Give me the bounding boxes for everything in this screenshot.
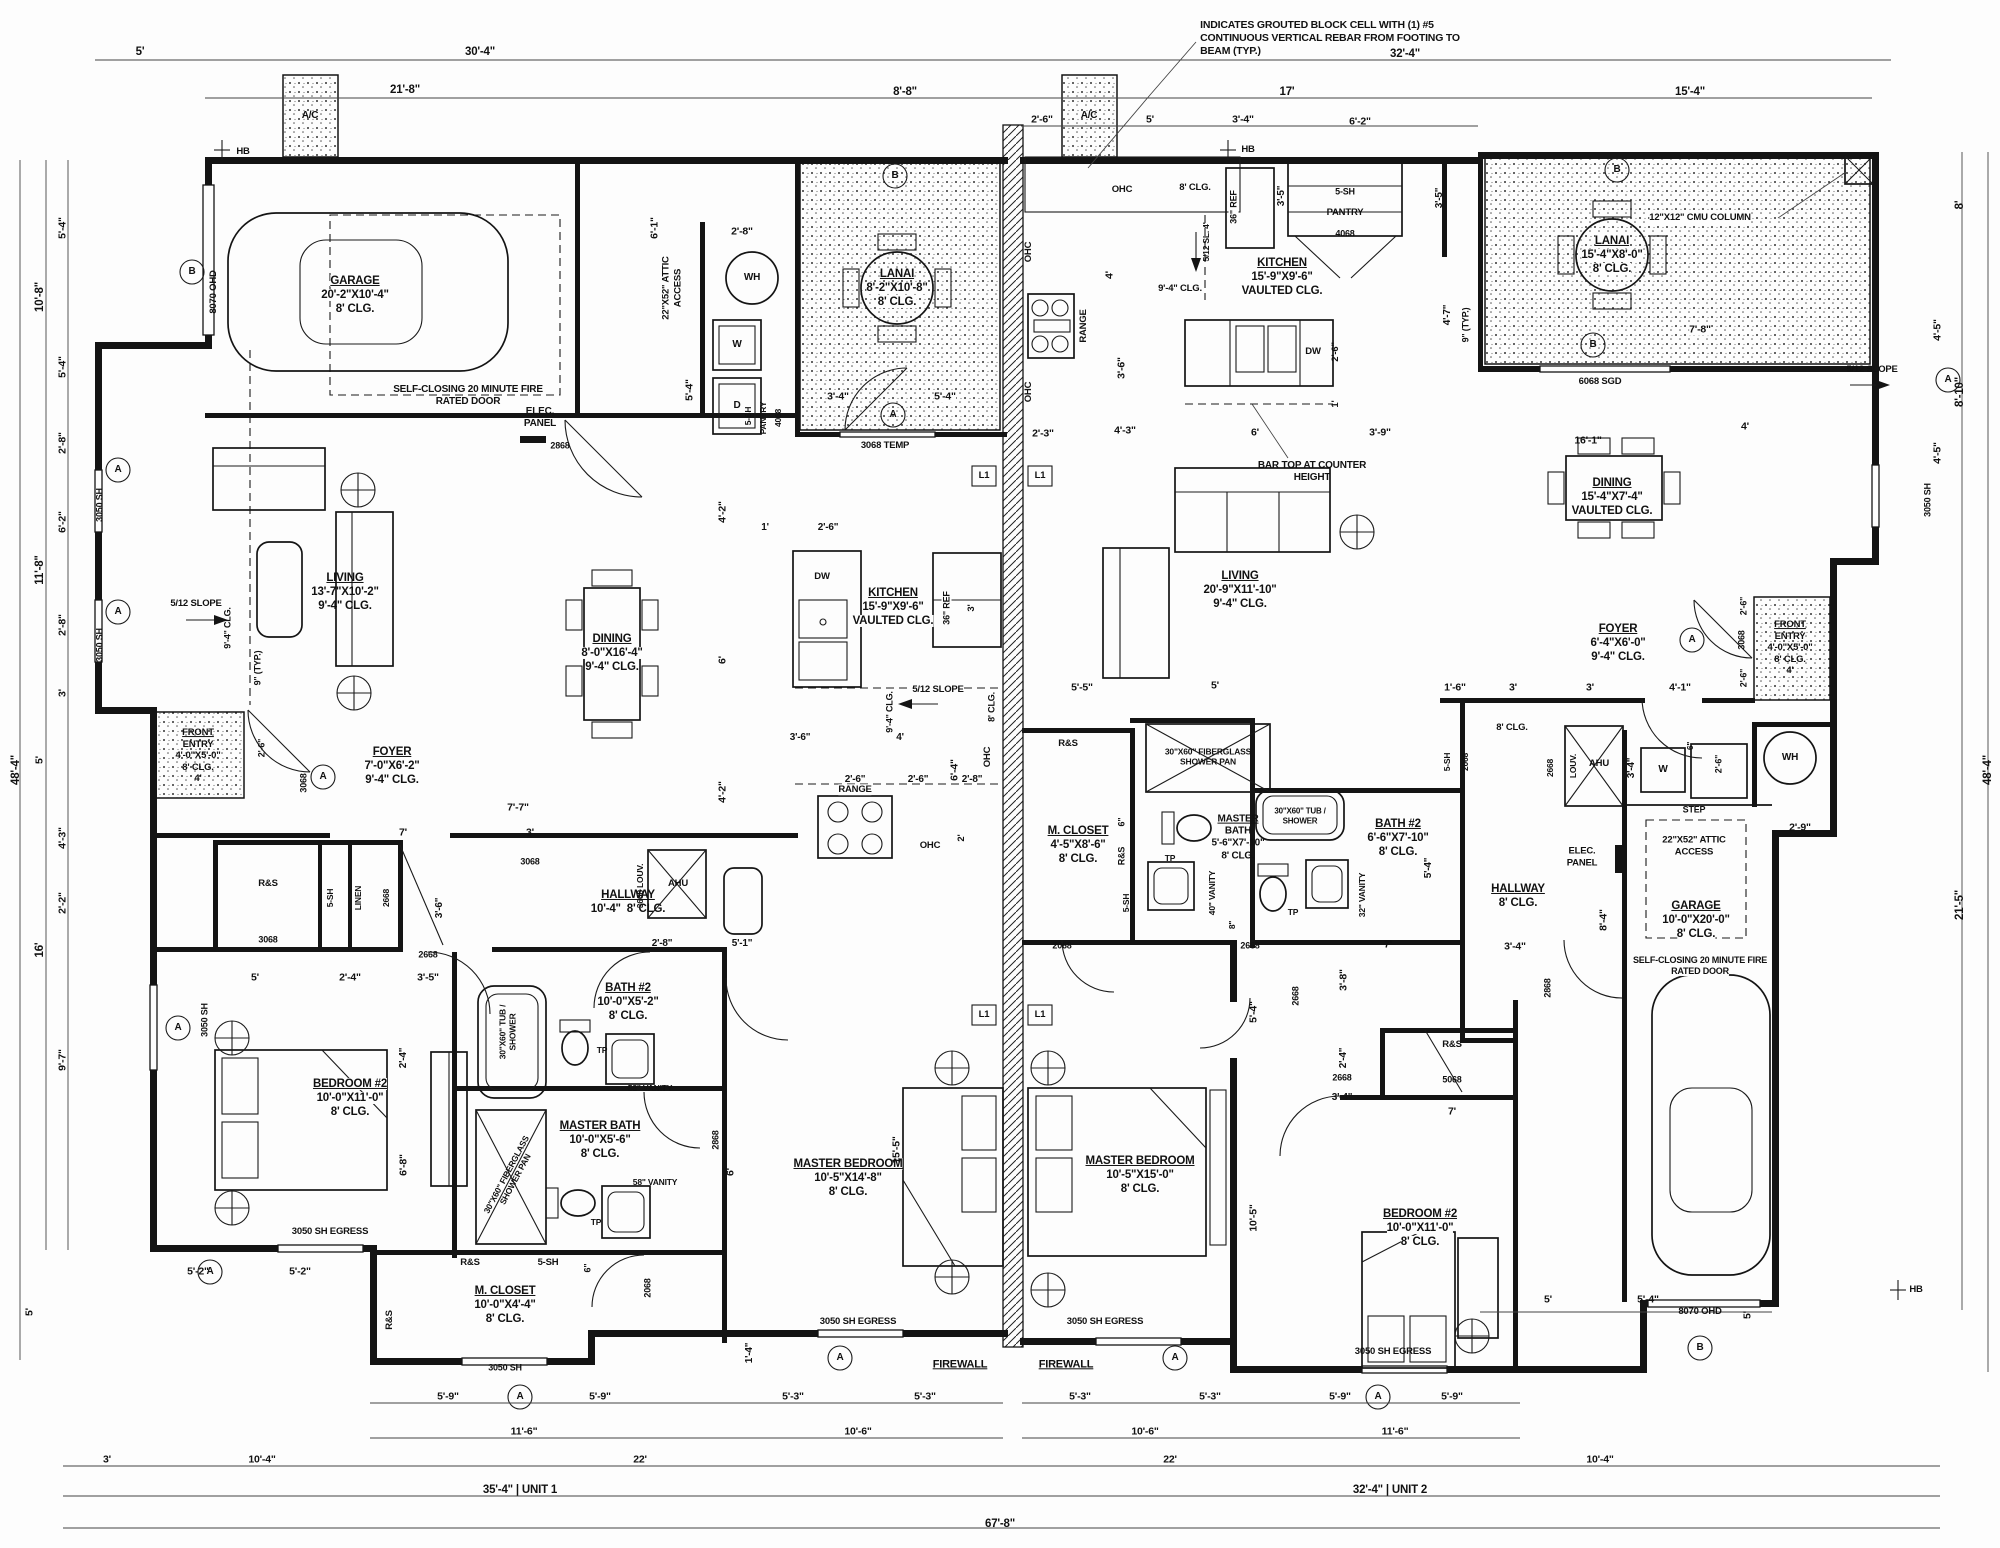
- label-252: 5'-4": [1423, 858, 1435, 879]
- label-138: 5'-2": [289, 1266, 311, 1279]
- label-142: 1'-4": [744, 1343, 756, 1364]
- label-189: 3'-9": [1369, 427, 1391, 440]
- label-268: A: [114, 606, 121, 618]
- label-274: A: [836, 1352, 843, 1364]
- label-103: 2668: [418, 950, 437, 961]
- label-159: 5'-9": [1441, 1391, 1463, 1404]
- label-250: 32" VANITY: [1357, 873, 1367, 917]
- room-kitchen-u1: KITCHEN 15'-9"X9'-6" VAULTED CLG.: [853, 586, 934, 628]
- label-116: 3050 SH: [200, 1003, 211, 1037]
- label-196: 9" (TYP.): [1461, 308, 1472, 343]
- label-88: 2'-8": [962, 774, 983, 786]
- label-165: 5': [1544, 1294, 1552, 1307]
- room-masterbedroom-u2: MASTER BEDROOM 10'-5"X15'-0" 8' CLG.: [1085, 1154, 1194, 1196]
- label-92: L1: [979, 470, 990, 482]
- label-118: 6'-8": [398, 1154, 411, 1176]
- label-106: 7'-7": [507, 802, 529, 815]
- label-266: 3050 SH EGRESS: [1355, 1346, 1431, 1358]
- room-bath2-u2: BATH #2 6'-6"X7'-10" 8' CLG.: [1367, 817, 1428, 859]
- label-186: 2'-6": [1330, 342, 1342, 362]
- label-147: 5'-3": [782, 1391, 804, 1404]
- room-dining-u1: DINING 8'-0"X16'-4" 9'-4" CLG.: [581, 632, 642, 674]
- label-221: 2'-9": [1789, 822, 1811, 835]
- label-20: 2'-8": [57, 432, 70, 454]
- room-bedroom2-u2: BEDROOM #2 10'-0"X11'-0" 8' CLG.: [1383, 1207, 1457, 1249]
- label-161: 11'-6": [1382, 1426, 1409, 1439]
- unit1-dim: 35'-4" | UNIT 1: [483, 1483, 557, 1497]
- label-109: 5'-1": [732, 938, 753, 950]
- label-217: 6": [1685, 742, 1695, 750]
- label-239: 40" VANITY: [1207, 871, 1217, 915]
- label-180: 3'-6": [1116, 357, 1129, 379]
- label-10: HB: [236, 146, 249, 158]
- label-38: 3050 SH: [1923, 483, 1934, 517]
- label-231: HB: [1909, 1284, 1922, 1296]
- label-63: 3050 SH: [95, 488, 106, 522]
- plan-labels: INDICATES GROUTED BLOCK CELL WITH (1) #5…: [0, 0, 2000, 1548]
- label-117: 2'-4": [398, 1048, 410, 1069]
- label-269: A: [319, 771, 326, 783]
- label-77: 36" REF: [942, 591, 953, 624]
- label-43: ELEC, PANEL: [524, 406, 556, 430]
- label-177: 5/12 SL. 4': [1201, 222, 1211, 261]
- label-33: 4'-5": [1932, 319, 1945, 341]
- label-282: B: [1613, 164, 1620, 176]
- label-21: 11'-8": [33, 555, 47, 584]
- label-167: OHC: [1023, 242, 1035, 263]
- label-11: HB: [1241, 144, 1254, 156]
- label-233: R&S: [1058, 738, 1077, 750]
- label-56: 3'-4": [827, 391, 849, 404]
- label-5: 8'-8": [893, 85, 917, 99]
- label-105: 3': [526, 827, 534, 840]
- label-104: 7': [399, 827, 407, 840]
- label-246: 3'-8": [1338, 969, 1351, 991]
- room-mcloset-u2: M. CLOSET 4'-5"X8'-6" 8' CLG.: [1048, 824, 1109, 866]
- label-51: 5'-4": [684, 379, 697, 401]
- label-267: A: [114, 464, 121, 476]
- label-133: R&S: [384, 1310, 396, 1329]
- label-72: 4'-2": [717, 781, 730, 803]
- label-283: B: [1696, 1342, 1703, 1354]
- label-122: TP: [597, 1045, 607, 1055]
- label-229: 2868: [1543, 978, 1554, 997]
- label-73: 1': [761, 522, 769, 534]
- label-262: R&S: [1442, 1039, 1461, 1051]
- label-70: 4'-2": [717, 501, 730, 523]
- label-178: 9'-4" CLG.: [1158, 283, 1202, 295]
- label-207: 3': [1586, 682, 1594, 695]
- label-199: 4': [1741, 421, 1749, 434]
- label-78: 3': [966, 604, 978, 611]
- label-19: 5'-4": [57, 356, 70, 378]
- room-dining-u2: DINING 15'-4"X7'-4" VAULTED CLG.: [1572, 476, 1653, 518]
- label-28: 16': [33, 943, 47, 958]
- label-251: TP: [1288, 907, 1298, 917]
- label-235: R&S: [1117, 847, 1128, 865]
- label-84: OHC: [982, 747, 994, 768]
- label-247: 7': [1384, 939, 1392, 952]
- label-219: WH: [1782, 752, 1798, 764]
- label-185: DW: [1305, 346, 1320, 358]
- label-114: 3'-5": [417, 972, 439, 985]
- label-172: 36" REF: [1229, 190, 1240, 223]
- label-22: 6'-2": [57, 511, 70, 533]
- label-261: 3'-4": [1332, 1092, 1353, 1104]
- label-136: 3050 SH: [488, 1363, 522, 1374]
- label-134: 6": [583, 1264, 594, 1273]
- room-masterbath-u1: MASTER BATH 10'-0"X5'-6" 8' CLG.: [560, 1119, 641, 1161]
- label-80: 9'-4" CLG.: [885, 691, 896, 732]
- firewall-label-1: FIREWALL: [933, 1358, 988, 1371]
- label-140: 15'-5": [891, 1136, 904, 1163]
- label-279: B: [188, 266, 195, 278]
- label-110: 3668 LOUV.: [635, 864, 645, 908]
- label-175: 4068: [1335, 229, 1354, 240]
- label-23: 2'-8": [57, 614, 70, 636]
- label-135: 2068: [643, 1278, 654, 1297]
- label-71: 6': [717, 656, 730, 664]
- label-280: B: [891, 170, 898, 182]
- label-206: 3': [1509, 682, 1517, 695]
- label-111: AHU: [668, 878, 688, 890]
- label-99: 5-SH: [325, 889, 335, 908]
- label-275: A: [1171, 1352, 1178, 1364]
- label-85: 3'-6": [790, 732, 811, 744]
- label-241: 2068: [1052, 941, 1071, 952]
- label-166: 5'-4": [1637, 1294, 1659, 1307]
- slope-u1-kitchen: 5/12 SLOPE: [912, 684, 963, 696]
- room-garage-u2: GARAGE 10'-0"X20'-0" 8' CLG.: [1662, 899, 1729, 941]
- room-foyer-u2: FOYER 6'-4"X6'-0" 9'-4" CLG.: [1590, 622, 1645, 664]
- label-2: 30'-4": [465, 45, 495, 59]
- label-158: 5'-9": [1329, 1391, 1351, 1404]
- note-bar-top: BAR TOP AT COUNTER HEIGHT: [1258, 460, 1366, 484]
- label-270: A: [889, 409, 896, 421]
- label-222: 22"X52" ATTIC ACCESS: [1662, 834, 1725, 857]
- label-68: 2'-6": [257, 739, 268, 757]
- label-148: 5'-3": [914, 1391, 936, 1404]
- label-53: PANTRY: [758, 402, 768, 435]
- label-243: 2668: [1240, 941, 1259, 952]
- label-276: A: [1374, 1391, 1381, 1403]
- label-193: 7'-8": [1689, 324, 1711, 337]
- ac-pad-2: A/C: [1081, 110, 1098, 122]
- label-205: 1'-6": [1444, 682, 1466, 695]
- label-128: 2868: [711, 1130, 722, 1149]
- label-90: OHC: [920, 840, 941, 852]
- label-272: A: [206, 1266, 213, 1278]
- label-277: A: [1688, 634, 1695, 646]
- label-238: TP: [1165, 853, 1175, 863]
- label-271: A: [174, 1022, 181, 1034]
- room-living-u1: LIVING 13'-7"X10'-2" 9'-4" CLG.: [311, 571, 378, 613]
- label-35: 4'-5": [1932, 442, 1945, 464]
- label-263: 5068: [1442, 1075, 1461, 1086]
- label-194: 6068 SGD: [1579, 376, 1622, 388]
- label-101: 2668: [381, 889, 391, 907]
- label-169: RANGE: [1078, 309, 1090, 342]
- label-26: 4'-3": [57, 827, 70, 849]
- label-245: 2668: [1291, 986, 1302, 1005]
- ac-pad-1: A/C: [302, 110, 319, 122]
- label-81: 4': [896, 732, 904, 744]
- label-119: 3050 SH EGRESS: [292, 1226, 368, 1238]
- label-181: 2'-3": [1032, 428, 1054, 441]
- label-76: DW: [814, 571, 829, 583]
- label-157: 5'-3": [1199, 1391, 1221, 1404]
- label-168: OHC: [1023, 382, 1035, 403]
- label-127: TP: [591, 1217, 601, 1227]
- label-27: 2'-2": [57, 892, 70, 914]
- label-174: PANTRY: [1327, 207, 1364, 219]
- label-91: 2': [956, 834, 968, 841]
- room-mcloset-u1: M. CLOSET 10'-0"X4'-4" 8' CLG.: [474, 1284, 535, 1326]
- label-132: 5-SH: [538, 1257, 559, 1269]
- label-215: 3'-4": [1626, 758, 1638, 779]
- label-47: 2'-8": [731, 226, 753, 239]
- label-204: 2'-6": [1739, 669, 1750, 687]
- label-212: 2668: [1545, 759, 1555, 777]
- label-7: 15'-4": [1675, 85, 1705, 99]
- label-126: 58" VANITY: [633, 1177, 677, 1187]
- label-45: 22"X52" ATTIC ACCESS: [660, 256, 683, 319]
- label-188: 6': [1251, 427, 1259, 440]
- note-fire-door-u2: SELF-CLOSING 20 MINUTE FIRE RATED DOOR: [1633, 955, 1767, 977]
- label-216: W: [1658, 764, 1667, 776]
- label-112: 5': [251, 972, 259, 985]
- label-151: 3': [103, 1454, 111, 1467]
- label-44: 2868: [550, 441, 569, 452]
- room-living-u2: LIVING 20'-9"X11'-10" 9'-4" CLG.: [1203, 569, 1276, 611]
- label-37: 5': [1742, 1311, 1755, 1319]
- label-32: 8': [1953, 201, 1967, 210]
- room-hallway-u1: HALLWAY 10'-4" 8' CLG.: [591, 888, 665, 916]
- label-13: 5': [1146, 114, 1154, 127]
- label-237: 30"X60" FIBERGLASS SHOWER PAN: [1165, 747, 1251, 768]
- slope-u2-dining: 5/12 SLOPE: [1846, 364, 1897, 376]
- label-100: LINEN: [353, 886, 363, 911]
- slope-u1-living: 5/12 SLOPE: [170, 598, 221, 610]
- label-179: 4': [1104, 271, 1117, 279]
- label-102: 3'-6": [434, 898, 446, 919]
- room-masterbath-u2: MASTER BATH 5'-6"X7'-10" 8' CLG.: [1212, 814, 1265, 863]
- label-107: 3068: [520, 857, 539, 868]
- label-83: 8' CLG.: [987, 692, 998, 722]
- label-163: 10'-4": [1586, 1454, 1613, 1467]
- label-82: 6'-4": [949, 759, 962, 781]
- label-214: AHU: [1589, 758, 1609, 770]
- label-258: 3050 SH EGRESS: [1067, 1316, 1143, 1328]
- label-50: D: [733, 400, 740, 412]
- label-184: 3'-5": [1434, 188, 1446, 209]
- label-3: 32'-4": [1390, 47, 1420, 61]
- label-182: 4'-3": [1114, 425, 1136, 438]
- label-254: 5'-5": [1071, 682, 1093, 695]
- label-58: 3068 TEMP: [861, 440, 909, 452]
- label-225: 8'-4": [1598, 909, 1611, 931]
- room-hallway-u2: HALLWAY 8' CLG.: [1491, 882, 1545, 910]
- label-209: 8' CLG.: [1496, 722, 1527, 734]
- label-52: 5-SH: [743, 407, 753, 426]
- label-152: 10'-4": [248, 1454, 275, 1467]
- label-89: RANGE: [838, 784, 871, 796]
- label-173: 5-SH: [1335, 187, 1355, 198]
- label-223: ELEC. PANEL: [1567, 845, 1598, 868]
- floorplan-sheet: INDICATES GROUTED BLOCK CELL WITH (1) #5…: [0, 0, 2000, 1548]
- room-kitchen-u2: KITCHEN 15'-9"X9'-6" VAULTED CLG.: [1242, 256, 1323, 298]
- label-260: 2668: [1332, 1073, 1351, 1084]
- label-48: WH: [744, 272, 760, 284]
- label-46: 6'-1": [649, 217, 662, 239]
- label-281: B: [1589, 339, 1596, 351]
- label-146: 5'-9": [589, 1391, 611, 1404]
- label-123: 58" VANITY: [628, 1083, 672, 1093]
- label-187: 1': [1330, 400, 1342, 407]
- room-lanai-u1: LANAI 8'-2"X10'-8" 8' CLG.: [866, 267, 927, 309]
- label-16: 48'-4": [9, 755, 23, 785]
- label-228: 3'-4": [1504, 941, 1526, 954]
- label-125: 30"X60" FIBERGLASS SHOWER PAN: [482, 1134, 541, 1220]
- label-244: 5'-4": [1248, 1001, 1261, 1023]
- label-36: 21'-5": [1953, 890, 1967, 920]
- label-57: 5'-4": [934, 391, 956, 404]
- label-34: 8'-10": [1953, 377, 1967, 407]
- label-94: L1: [979, 1009, 990, 1021]
- label-18: 5'-4": [57, 217, 70, 239]
- label-121: 30"X60" TUB / SHOWER: [498, 1005, 519, 1060]
- label-74: 2'-6": [818, 522, 839, 534]
- note-fire-door-u1: SELF-CLOSING 20 MINUTE FIRE RATED DOOR: [393, 384, 543, 408]
- label-257: 10'-5": [1248, 1204, 1261, 1231]
- label-234: 6": [1117, 818, 1128, 827]
- label-64: 3050 SH: [95, 628, 106, 662]
- label-12: 2'-6": [1031, 114, 1053, 127]
- label-4: 21'-8": [390, 83, 420, 97]
- room-bedroom2-u1: BEDROOM #2 10'-0"X11'-0" 8' CLG.: [313, 1077, 387, 1119]
- room-garage-u1: GARAGE 20'-2"X10'-4" 8' CLG.: [321, 274, 388, 316]
- label-25: 5': [34, 756, 47, 764]
- label-203: 2'-6": [1739, 597, 1750, 615]
- label-197: 16'-1": [1574, 435, 1601, 448]
- label-95: L1: [1035, 1009, 1046, 1021]
- label-210: 5-SH: [1442, 753, 1452, 772]
- label-242: 8": [1227, 921, 1237, 929]
- label-211: 2068: [1460, 753, 1470, 771]
- room-front-entry-u1: FRONT ENTRY 4'-0"X5'-0" 8' CLG. 4': [175, 727, 220, 785]
- label-108: 2'-8": [652, 938, 673, 950]
- label-195: 4'-7": [1442, 305, 1454, 326]
- label-249: 30"X60" TUB / SHOWER: [1274, 806, 1325, 826]
- label-149: 11'-6": [511, 1426, 538, 1439]
- label-213: LOUV.: [1568, 754, 1578, 778]
- label-1: 5': [136, 45, 145, 59]
- label-61: 9'-4" CLG.: [223, 607, 234, 648]
- unit2-dim: 32'-4" | UNIT 2: [1353, 1483, 1427, 1497]
- label-97: R&S: [258, 878, 277, 890]
- label-87: 2'-6": [908, 774, 929, 786]
- label-141: 3050 SH EGRESS: [820, 1316, 896, 1328]
- firewall-label-2: FIREWALL: [1039, 1358, 1094, 1371]
- label-54: 4068: [773, 409, 783, 427]
- label-278: A: [1944, 374, 1951, 386]
- label-230: 8070 OHD: [1678, 1306, 1721, 1318]
- room-masterbedroom-u1: MASTER BEDROOM 10'-5"X14'-8" 8' CLG.: [793, 1157, 902, 1199]
- label-69: 3068: [299, 773, 310, 792]
- label-153: 22': [633, 1454, 647, 1467]
- label-49: W: [732, 339, 741, 351]
- room-front-entry-u2: FRONT ENTRY 4'-0"X5'-0" 8' CLG. 4': [1767, 619, 1812, 677]
- label-218: 2'-6": [1714, 755, 1725, 773]
- label-14: 3'-4": [1232, 114, 1254, 127]
- label-6: 17': [1280, 85, 1295, 99]
- label-259: 2'-4": [1338, 1048, 1350, 1069]
- label-220: STEP: [1683, 805, 1706, 816]
- label-208: 4'-1": [1669, 682, 1691, 695]
- label-62: 9" (TYP.): [253, 651, 264, 686]
- label-255: 5': [1211, 680, 1219, 693]
- label-131: R&S: [460, 1257, 479, 1269]
- label-15: 6'-2": [1349, 116, 1371, 129]
- room-foyer-u1: FOYER 7'-0"X6'-2" 9'-4" CLG.: [364, 745, 419, 787]
- label-113: 2'-4": [339, 972, 361, 985]
- overall-dim: 67'-8": [985, 1517, 1015, 1531]
- label-29: 9'-7": [57, 1049, 70, 1071]
- room-bath2-u1: BATH #2 10'-0"X5'-2" 8' CLG.: [597, 981, 658, 1023]
- label-30: 5': [24, 1308, 37, 1316]
- label-240: 5-SH: [1121, 894, 1131, 913]
- label-162: 22': [1163, 1454, 1177, 1467]
- label-41: 8070 OHD: [208, 270, 220, 313]
- label-171: 8' CLG.: [1179, 182, 1210, 194]
- label-31: 48'-4": [1981, 755, 1995, 785]
- label-201: 3068: [1737, 630, 1748, 649]
- label-160: 10'-6": [1131, 1426, 1158, 1439]
- label-145: 5'-9": [437, 1391, 459, 1404]
- note-cmu: 12"X12" CMU COLUMN: [1649, 212, 1750, 224]
- label-170: OHC: [1112, 184, 1133, 196]
- room-lanai-u2: LANAI 15'-4"X8'-0" 8' CLG.: [1581, 234, 1642, 276]
- label-183: 3'-5": [1276, 186, 1288, 207]
- label-17: 10'-8": [33, 282, 47, 312]
- note-grouted-block: INDICATES GROUTED BLOCK CELL WITH (1) #5…: [1200, 19, 1460, 57]
- label-156: 5'-3": [1069, 1391, 1091, 1404]
- label-150: 10'-6": [844, 1426, 871, 1439]
- label-24: 3': [57, 689, 70, 697]
- label-129: 6': [725, 1168, 738, 1176]
- label-264: 7': [1448, 1106, 1456, 1119]
- label-93: L1: [1035, 470, 1046, 482]
- label-273: A: [516, 1391, 523, 1403]
- label-98: 3068: [258, 935, 277, 946]
